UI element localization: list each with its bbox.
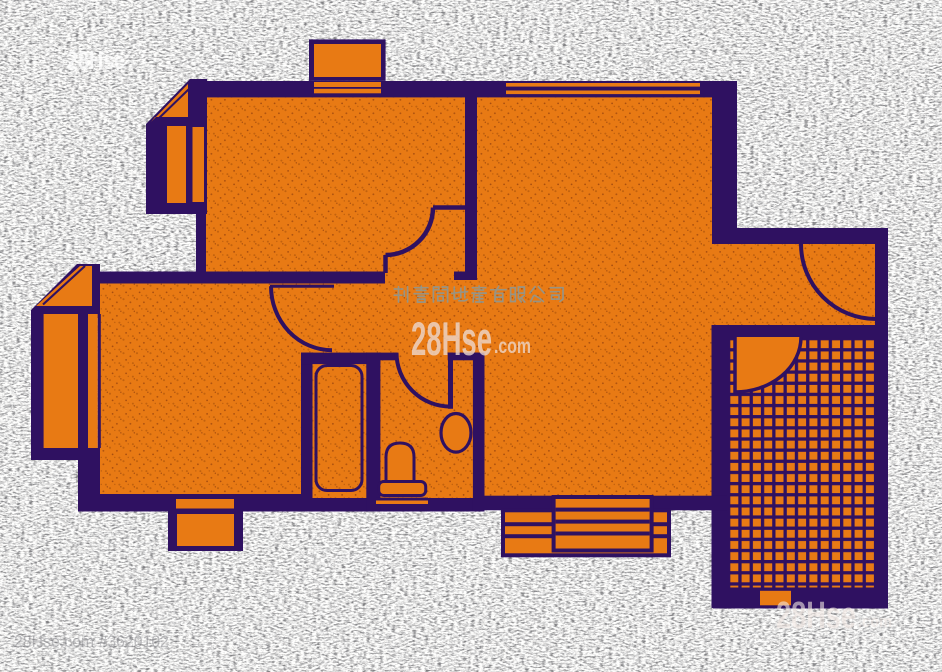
svg-text:28Hse.com #3620102: 28Hse.com #3620102 bbox=[14, 633, 169, 651]
svg-text:.com: .com bbox=[858, 612, 892, 631]
svg-text:.com: .com bbox=[494, 335, 531, 358]
svg-text:28Hse: 28Hse bbox=[411, 312, 492, 365]
svg-text:28Hse: 28Hse bbox=[67, 47, 125, 75]
svg-text:28Hse: 28Hse bbox=[776, 595, 856, 637]
